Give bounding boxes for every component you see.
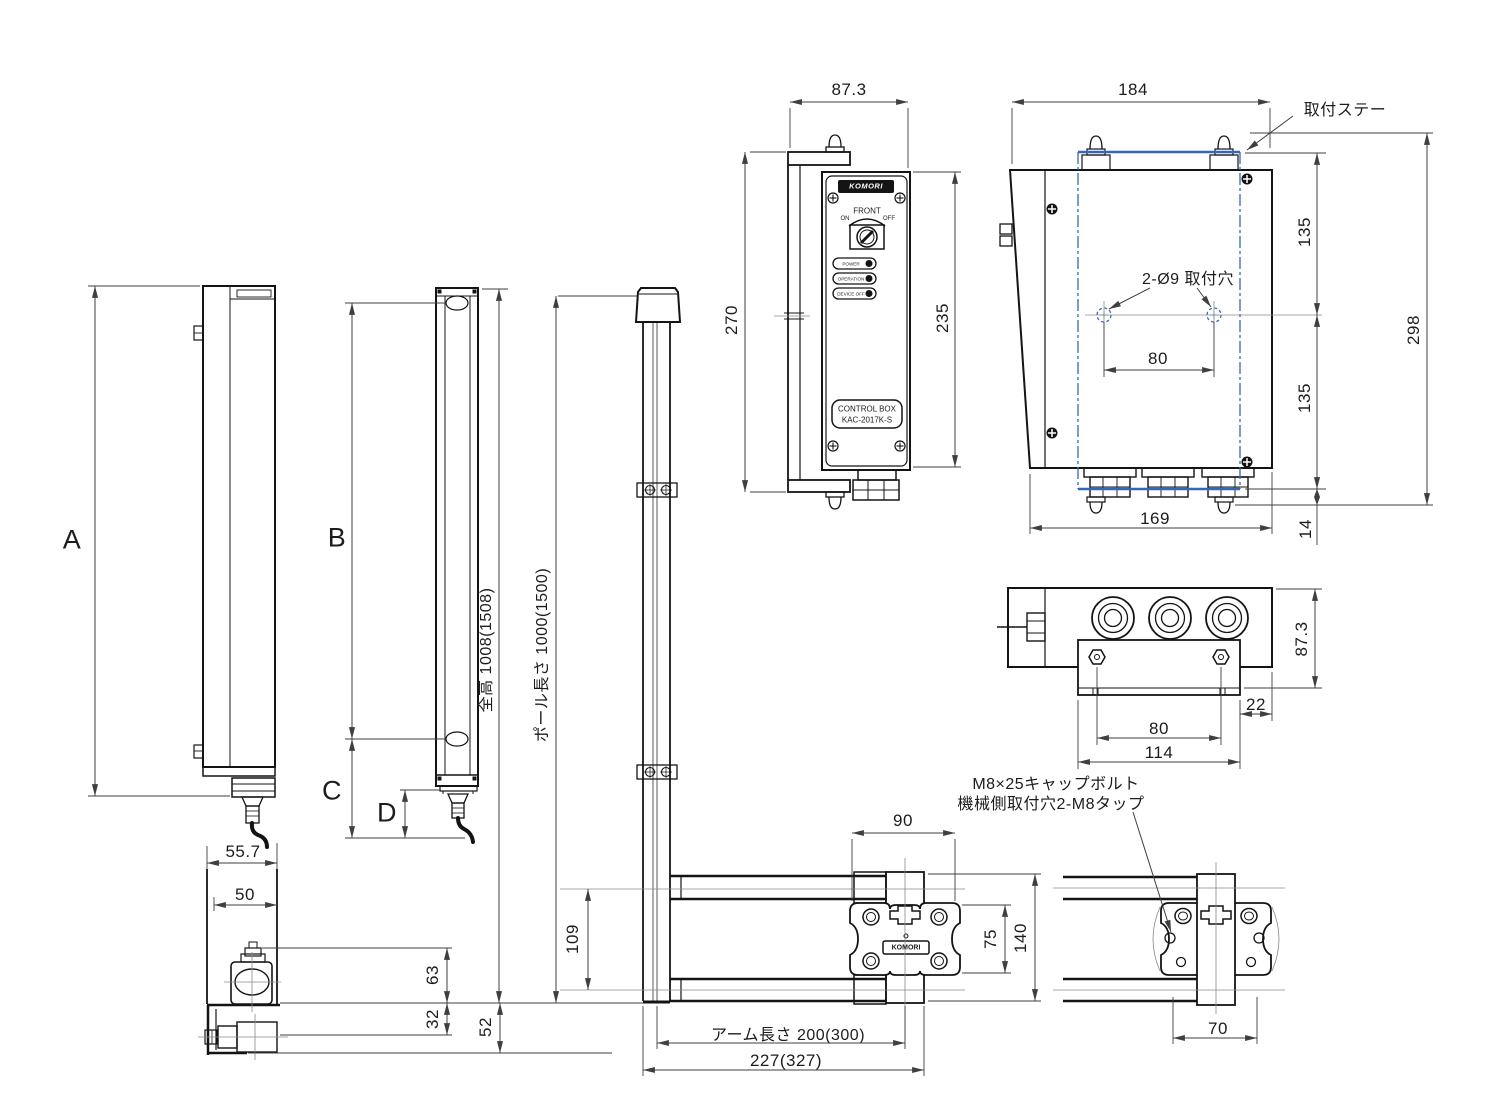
dim-rear-width: 184 — [1118, 80, 1148, 100]
dim-bracket-140: 140 — [1011, 923, 1031, 953]
led-label-operation: OPERATION — [838, 276, 865, 281]
sensor-front-view — [436, 288, 478, 842]
dim-bottom-depth: 87.3 — [1292, 621, 1312, 656]
nameplate-line1: CONTROL BOX — [838, 405, 896, 414]
komori-logo-text: KOMORI — [849, 182, 883, 191]
dim-box-bracket-height: 270 — [722, 305, 742, 335]
dim-machine-hole-pitch: 70 — [1208, 1019, 1228, 1039]
callout-mounting-holes: 2-Ø9 取付穴 — [1142, 265, 1234, 289]
dim-rear-135-lower: 135 — [1295, 383, 1315, 413]
dim-rear-base-width: 169 — [1140, 509, 1170, 529]
dim-pole-length: ポール長さ 1000(1500) — [528, 568, 552, 742]
technical-drawing-page: A B C D 全高 1008(1508) ポール長さ 1000(1500) 5… — [0, 0, 1500, 1107]
key-slot — [861, 231, 873, 243]
sensor-side-view — [194, 286, 275, 847]
switch-off-label: OFF — [883, 216, 895, 222]
dim-mount-32: 32 — [423, 1009, 443, 1029]
bracket-bolt-bottom — [826, 492, 844, 509]
dim-label-b: B — [328, 523, 347, 554]
side-connector — [997, 613, 1045, 641]
callout-mounting-stay: 取付ステー — [1304, 96, 1387, 120]
dim-mount-63: 63 — [423, 965, 443, 985]
side-connector-nub-lower — [194, 745, 203, 758]
bracket-logo-text: KOMORI — [892, 944, 921, 951]
bracket-bolt-top — [826, 135, 844, 152]
drawing-canvas — [0, 0, 1500, 1107]
stay-bolt-bottom-left — [1087, 497, 1105, 513]
machine-mount-detail — [1053, 862, 1285, 1014]
dim-sensor-width: 55.7 — [225, 842, 260, 862]
cable-glands-rear — [1084, 468, 1254, 497]
led-label-power: POWER — [842, 261, 859, 266]
dim-sensor-face-width: 50 — [235, 885, 255, 905]
dim-label-d: D — [377, 798, 397, 829]
dim-arm-length: アーム長さ 200(300) — [711, 1021, 865, 1045]
cable-glands-bottom — [1092, 597, 1248, 639]
side-connector-nub-upper — [194, 326, 203, 340]
pole-view — [636, 288, 680, 1002]
pole-cap — [636, 288, 680, 322]
dim-hole-pitch: 80 — [1148, 349, 1168, 369]
dim-label-c: C — [322, 776, 342, 807]
box-body — [822, 172, 910, 470]
mounting-stay — [1078, 152, 1240, 489]
dim-box-width: 87.3 — [831, 80, 866, 100]
dim-bottom-hole-pitch: 80 — [1149, 719, 1169, 739]
dim-label-a: A — [63, 525, 82, 556]
dim-box-height: 235 — [933, 303, 953, 333]
stay-bolt-bottom-right — [1215, 497, 1233, 513]
dim-bottom-22: 22 — [1246, 695, 1266, 715]
dim-bracket-75: 75 — [981, 929, 1001, 949]
wall-bracket — [774, 152, 850, 492]
dim-rear-offset: 14 — [1296, 519, 1316, 539]
bottom-beam-lens — [446, 732, 468, 746]
dim-rear-135-upper: 135 — [1295, 217, 1315, 247]
control-box-bottom-view — [997, 588, 1272, 695]
rear-body — [1010, 170, 1272, 468]
dim-rear-height: 298 — [1404, 315, 1424, 345]
led-label-device-off: DEVICE OFF — [837, 291, 865, 296]
control-box-front-view — [774, 135, 910, 509]
dim-mount-52: 52 — [476, 1017, 496, 1037]
dim-overall-height: 全高 1008(1508) — [472, 588, 496, 713]
switch-on-label: ON — [841, 216, 850, 222]
front-label: FRONT — [853, 207, 881, 216]
dim-arm-pitch: 109 — [563, 924, 583, 954]
dim-bracket-90: 90 — [893, 811, 913, 831]
top-beam-lens — [446, 296, 468, 310]
pole-clamp-block — [231, 942, 272, 1004]
dim-arm-overall: 227(327) — [750, 1051, 822, 1071]
nameplate-line2: KAC-2017K-S — [842, 416, 892, 425]
callout-machine-side-tap: 機械側取付穴2-M8タップ — [958, 790, 1145, 814]
cable-gland-front — [853, 470, 899, 500]
dim-bottom-plate-width: 114 — [1145, 743, 1174, 763]
stay-plate-bottom — [1078, 640, 1240, 695]
control-box-rear-view — [1000, 136, 1322, 513]
